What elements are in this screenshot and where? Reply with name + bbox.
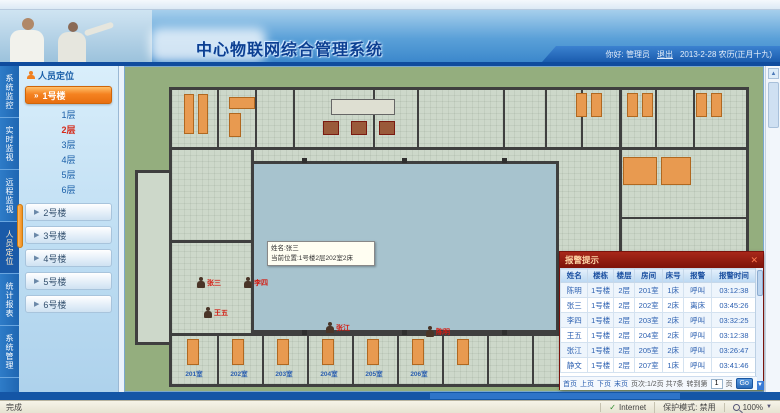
furniture-chairs <box>323 121 339 135</box>
furniture-bed <box>412 339 424 365</box>
header-banner: 中心物联网综合管理系统 你好: 管理员 退出 2013-2-28 农历(正月十九… <box>0 10 780 62</box>
furniture-wardrobe <box>184 94 194 134</box>
furniture-bed <box>322 339 334 365</box>
table-row[interactable]: 张三1号楼2层202室2床离床03:45:26 <box>561 298 757 313</box>
alarm-scrollbar[interactable]: ▼ <box>755 268 763 390</box>
wall <box>487 336 489 384</box>
furniture-bed <box>232 339 244 365</box>
pillar <box>302 330 307 335</box>
pillar <box>402 330 407 335</box>
tooltip-location: 当前位置:1号楼2层202室2床 <box>271 254 371 264</box>
browser-chrome-strip <box>0 0 780 10</box>
col-building: 楼栋 <box>588 269 613 283</box>
col-alarm: 报警 <box>684 269 711 283</box>
alarm-panel-titlebar: 报警提示 ✕ <box>560 252 763 268</box>
page-first-link[interactable]: 首页 <box>563 379 577 389</box>
building-button-label: 6号楼 <box>43 298 66 311</box>
date-display: 2013-2-28 农历(正月十九) <box>680 49 772 60</box>
room-label: 202室 <box>219 368 259 378</box>
table-row[interactable]: 李四1号楼2层203室2床呼叫03:32:25 <box>561 313 757 328</box>
furniture-chairs <box>351 121 367 135</box>
bottom-bar-segment <box>430 393 680 399</box>
building-button-label: 4号楼 <box>43 252 66 265</box>
bottom-blue-bar <box>0 392 780 400</box>
building-button-3[interactable]: ▶ 3号楼 <box>25 226 112 244</box>
alarm-table-header: 姓名 楼栋 楼层 房间 床号 报警 报警时间 <box>561 269 757 283</box>
building-button-5[interactable]: ▶ 5号楼 <box>25 272 112 290</box>
building-annex <box>135 170 172 345</box>
table-row[interactable]: 张江1号楼2层205室2床呼叫03:26:47 <box>561 343 757 358</box>
person-marker[interactable]: 王五 <box>204 307 264 319</box>
room-label: 206室 <box>399 368 439 378</box>
col-name: 姓名 <box>561 269 588 283</box>
tab-system-monitor[interactable]: 系统监控 <box>0 66 19 118</box>
floor-item-2-active[interactable]: 2层 <box>19 123 118 138</box>
furniture-cabinet <box>229 113 241 137</box>
furniture-chairs <box>379 121 395 135</box>
tooltip-name: 姓名:张三 <box>271 244 371 254</box>
wall <box>693 90 695 147</box>
chevron-right-icon: ▶ <box>34 254 39 262</box>
wall <box>251 147 254 164</box>
page-title: 中心物联网综合管理系统 <box>196 36 383 60</box>
furniture-bed <box>187 339 199 365</box>
alarm-table: 姓名 楼栋 楼层 房间 床号 报警 报警时间 陈明1号楼2层201室1床呼叫03… <box>560 268 757 373</box>
building-button-label: 3号楼 <box>43 229 66 242</box>
sidebar-panel-header: 人员定位 <box>19 66 118 84</box>
scroll-down-arrow-icon[interactable]: ▼ <box>756 381 764 390</box>
person-marker-name: 张三 <box>207 278 221 288</box>
building-button-4[interactable]: ▶ 4号楼 <box>25 249 112 267</box>
pillar <box>302 158 307 163</box>
person-marker-name: 张江 <box>336 323 350 333</box>
app-window: 中心物联网综合管理系统 你好: 管理员 退出 2013-2-28 农历(正月十九… <box>0 0 780 413</box>
status-text: 完成 <box>0 402 600 413</box>
alarm-pagination: 首页 上页 下页 末页 页次:1/2页 共7条 转到第 页 Go <box>560 376 757 390</box>
banner-photo <box>0 10 152 62</box>
photo-person-body <box>58 32 86 62</box>
building-button-2[interactable]: ▶ 2号楼 <box>25 203 112 221</box>
alarm-panel: 报警提示 ✕ 姓名 楼栋 楼层 房间 床号 报警 报警时间 陈明1号楼2层201… <box>559 251 764 390</box>
chevron-right-icon: ▶ <box>34 231 39 239</box>
room-label: 205室 <box>354 368 394 378</box>
furniture-table <box>331 99 395 115</box>
pillar <box>402 158 407 163</box>
wall <box>293 90 295 147</box>
col-floor: 楼层 <box>613 269 635 283</box>
tab-realtime-view[interactable]: 实时监视 <box>0 118 19 170</box>
table-row[interactable]: 王五1号楼2层204室2床呼叫03:12:38 <box>561 328 757 343</box>
page-info: 页次:1/2页 共7条 <box>631 379 684 389</box>
person-marker[interactable]: 李四 <box>244 277 304 289</box>
wall <box>217 90 219 147</box>
photo-person-arm <box>84 22 114 37</box>
room-label: 203室 <box>264 368 304 378</box>
tab-statistics-report[interactable]: 统计报表 <box>0 274 19 326</box>
col-time: 报警时间 <box>711 269 756 283</box>
furniture-wardrobe <box>198 94 208 134</box>
building-button-label: 1号楼 <box>42 89 65 102</box>
status-zoom[interactable]: 100% ▼ <box>724 403 780 412</box>
furniture-cabinet <box>229 97 255 109</box>
person-marker-name: 陈明 <box>436 327 450 337</box>
pillar <box>502 330 507 335</box>
furniture-bed <box>367 339 379 365</box>
alarm-panel-body: 姓名 楼栋 楼层 房间 床号 报警 报警时间 陈明1号楼2层201室1床呼叫03… <box>560 268 763 390</box>
furniture-bed <box>627 93 638 117</box>
user-info-bar: 你好: 管理员 退出 2013-2-28 农历(正月十九) <box>542 46 780 62</box>
wall <box>545 90 547 147</box>
page-last-link[interactable]: 末页 <box>614 379 628 389</box>
floor-item-1[interactable]: 1层 <box>19 108 118 123</box>
panel-collapse-handle[interactable] <box>17 204 23 248</box>
floor-item-4[interactable]: 4层 <box>19 153 118 168</box>
furniture-bed <box>457 339 469 365</box>
magnifier-icon <box>733 404 740 411</box>
scrollbar-thumb[interactable] <box>768 82 779 128</box>
floor-list: 1层 2层 3层 4层 5层 6层 <box>19 108 118 198</box>
person-icon <box>27 71 35 79</box>
furniture-bed <box>661 157 691 185</box>
chevron-right-icon: ▶ <box>34 277 39 285</box>
pillar <box>502 158 507 163</box>
alarm-panel-title: 报警提示 <box>565 254 599 266</box>
sidebar-panel-title: 人员定位 <box>38 69 74 82</box>
room-label: 204室 <box>309 368 349 378</box>
furniture-bed <box>277 339 289 365</box>
wall <box>172 240 251 243</box>
room-label: 201室 <box>174 368 214 378</box>
person-marker-name: 李四 <box>254 278 268 288</box>
go-button[interactable]: Go <box>736 378 753 389</box>
status-zone: ✓ Internet <box>600 403 654 412</box>
chevron-right-icon: » <box>34 91 38 100</box>
wall <box>622 217 746 219</box>
building-button-1[interactable]: » 1号楼 <box>25 86 112 104</box>
furniture-bed <box>623 157 657 185</box>
floor-item-3[interactable]: 3层 <box>19 138 118 153</box>
close-icon[interactable]: ✕ <box>750 255 758 266</box>
person-marker[interactable]: 陈明 <box>426 326 486 338</box>
photo-person-head <box>68 22 78 32</box>
browser-status-bar: 完成 ✓ Internet 保护模式: 禁用 100% ▼ <box>0 400 780 413</box>
goto-suffix: 页 <box>726 379 733 389</box>
furniture-bed <box>696 93 707 117</box>
furniture-bed <box>642 93 653 117</box>
wall <box>532 336 534 384</box>
chevron-down-icon: ▼ <box>766 404 772 410</box>
table-row[interactable]: 陈明1号楼2层201室1床呼叫03:12:38 <box>561 283 757 298</box>
scroll-up-arrow-icon[interactable]: ▲ <box>768 68 779 79</box>
wall <box>503 90 505 147</box>
table-row[interactable]: 静文1号楼2层207室1床呼叫03:41:46 <box>561 358 757 373</box>
building-button-label: 5号楼 <box>43 275 66 288</box>
page-prev-link[interactable]: 上页 <box>580 379 594 389</box>
furniture-bed <box>576 93 587 117</box>
wall <box>417 90 419 147</box>
floor-item-5[interactable]: 5层 <box>19 168 118 183</box>
sidebar-panel: 人员定位 » 1号楼 1层 2层 3层 4层 5层 6层 ▶ 2号楼 ▶ 3号楼… <box>19 66 119 392</box>
scrollbar-thumb[interactable] <box>757 270 763 296</box>
page-scrollbar[interactable]: ▲ <box>765 66 780 392</box>
status-protected-mode: 保护模式: 禁用 <box>654 402 723 413</box>
furniture-bed <box>591 93 602 117</box>
furniture-bed <box>711 93 722 117</box>
floor-item-6[interactable]: 6层 <box>19 183 118 198</box>
person-marker[interactable]: 张江 <box>326 322 386 334</box>
wall <box>655 90 657 147</box>
col-bed: 床号 <box>662 269 684 283</box>
logout-link[interactable]: 退出 <box>657 49 673 60</box>
photo-person-body <box>10 30 44 62</box>
wall <box>172 147 746 150</box>
page-next-link[interactable]: 下页 <box>597 379 611 389</box>
chevron-right-icon: ▶ <box>34 300 39 308</box>
user-greeting: 你好: 管理员 <box>606 49 650 60</box>
building-button-6[interactable]: ▶ 6号楼 <box>25 295 112 313</box>
person-tooltip: 姓名:张三 当前位置:1号楼2层202室2床 <box>267 241 375 266</box>
person-marker-name: 王五 <box>214 308 228 318</box>
photo-person-head <box>22 18 34 30</box>
building-button-label: 2号楼 <box>43 206 66 219</box>
chevron-right-icon: ▶ <box>34 208 39 216</box>
tab-system-manage[interactable]: 系统管理 <box>0 326 19 378</box>
wall <box>442 336 444 384</box>
col-room: 房间 <box>635 269 662 283</box>
goto-page-input[interactable] <box>711 379 723 389</box>
goto-label: 转到第 <box>687 379 708 389</box>
wall <box>255 90 257 147</box>
check-icon: ✓ <box>609 403 616 412</box>
